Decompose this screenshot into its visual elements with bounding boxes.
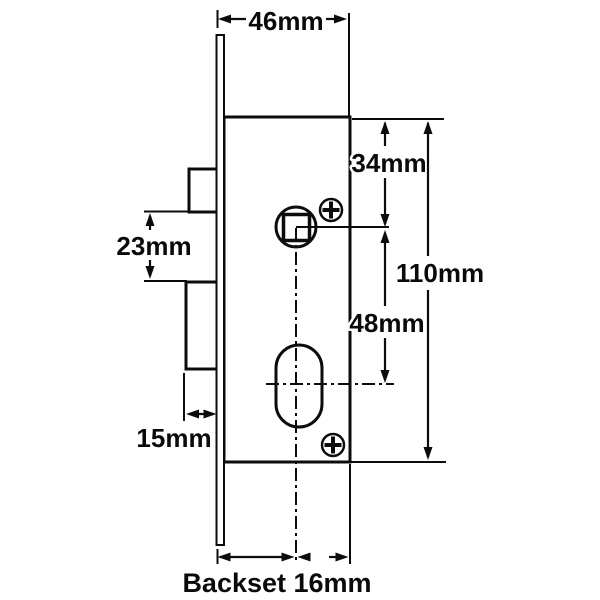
dimension-34mm: 34mm	[351, 121, 426, 227]
deadbolt	[186, 282, 218, 369]
arrowhead-right	[334, 15, 347, 24]
arrowhead-down	[424, 447, 433, 460]
dimension-23mm: 23mm	[116, 213, 191, 279]
arrowhead-left	[218, 15, 231, 24]
arrowhead-up	[146, 213, 155, 226]
dim-label-between-bolts: 23mm	[116, 231, 191, 261]
dimension-backset-16mm: Backset 16mm	[182, 553, 371, 599]
latch-bolt	[189, 169, 219, 212]
phillips-screw-icon	[322, 434, 344, 456]
phillips-screw-icon	[320, 199, 342, 221]
lock-dimension-diagram: 46mm 34mm 48mm 110mm 23mm 15mm	[0, 0, 600, 600]
arrowhead-left	[298, 553, 311, 562]
arrowhead-up	[381, 230, 390, 243]
dimension-48mm: 48mm	[349, 230, 424, 383]
dim-label-overall-height: 110mm	[396, 258, 484, 288]
arrowhead-right	[282, 553, 295, 562]
diagram-canvas: 46mm 34mm 48mm 110mm 23mm 15mm	[0, 0, 600, 600]
arrowhead-left	[218, 553, 231, 562]
dimension-15mm: 15mm	[136, 410, 216, 454]
dimension-46mm: 46mm	[218, 6, 347, 36]
arrowhead-up	[424, 121, 433, 134]
dim-label-bolt-projection: 15mm	[136, 423, 211, 453]
dim-label-backset: Backset 16mm	[182, 568, 371, 598]
arrowhead-left	[186, 410, 199, 419]
arrowhead-down	[146, 266, 155, 279]
dim-label-top-to-spindle: 34mm	[351, 148, 426, 178]
arrowhead-up	[381, 121, 390, 134]
arrowhead-down	[381, 370, 390, 383]
arrowhead-right	[336, 553, 349, 562]
arrowhead-right	[204, 410, 217, 419]
oval-cylinder-hole	[276, 345, 322, 427]
dim-label-spindle-to-cylinder: 48mm	[349, 308, 424, 338]
dim-label-case-width: 46mm	[248, 6, 323, 36]
arrowhead-down	[381, 214, 390, 227]
faceplate	[217, 35, 225, 545]
